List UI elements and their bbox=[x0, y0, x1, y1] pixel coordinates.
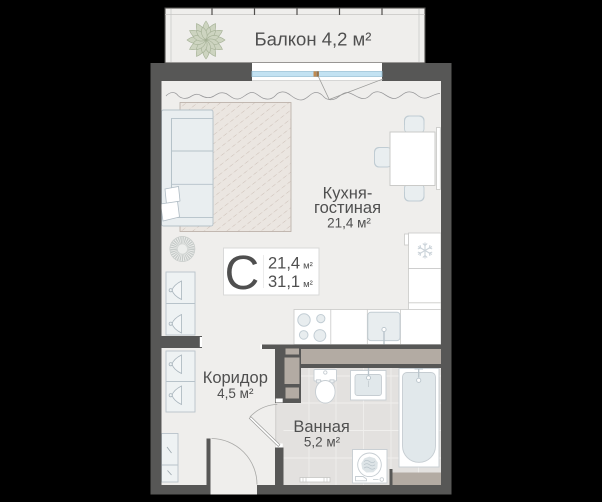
svg-text:Ванная: Ванная bbox=[293, 418, 350, 436]
svg-text:5,2 м²: 5,2 м² bbox=[304, 435, 341, 450]
svg-text:гостиная: гостиная bbox=[314, 199, 381, 217]
svg-text:С: С bbox=[225, 247, 260, 300]
svg-text:21,4 м²: 21,4 м² bbox=[327, 216, 371, 231]
svg-text:4,5 м²: 4,5 м² bbox=[217, 386, 254, 401]
svg-text:Балкон 4,2 м²: Балкон 4,2 м² bbox=[255, 29, 372, 50]
svg-text:Коридор: Коридор bbox=[203, 369, 268, 387]
